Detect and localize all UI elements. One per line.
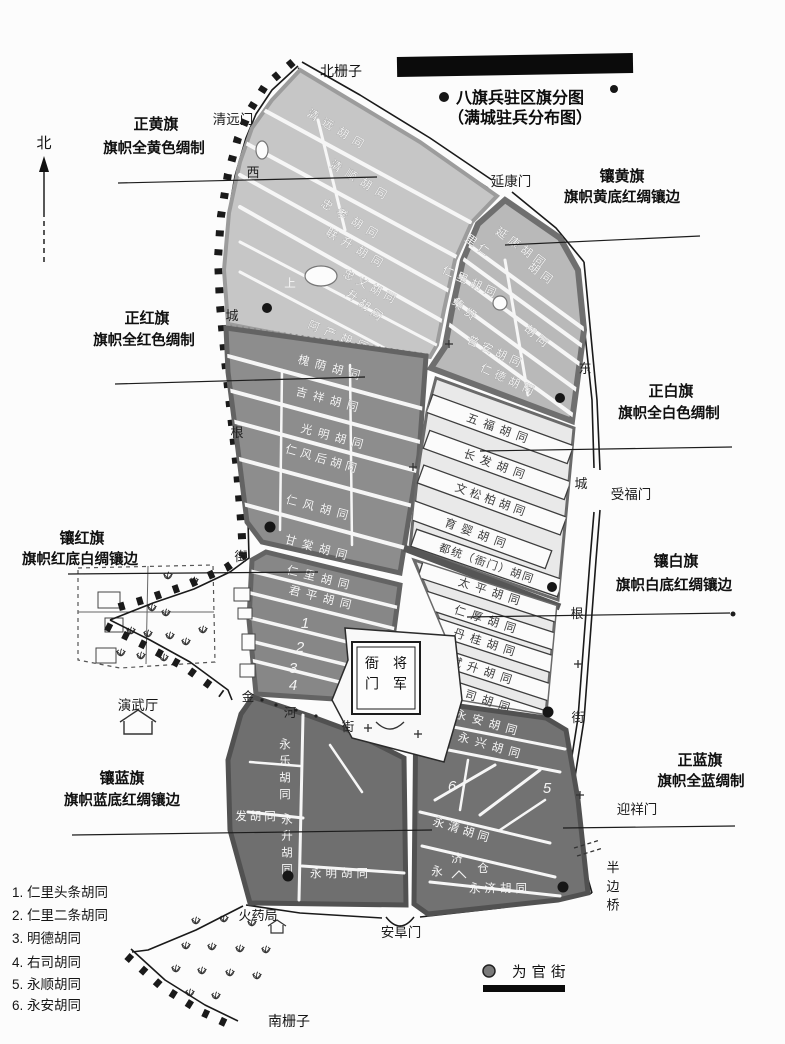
drill-hall-house-icon <box>120 710 156 734</box>
banner-label-xianghuang: 镶黄旗 <box>599 167 644 185</box>
hutong-label-shang: 上 <box>284 277 296 290</box>
svg-text:旗帜全蓝绸制: 旗帜全蓝绸制 <box>658 772 745 790</box>
pond <box>305 266 337 286</box>
svg-text:旗帜全红色绸制: 旗帜全红色绸制 <box>93 331 195 349</box>
note-item-4: 4. 右司胡同 <box>12 955 81 970</box>
north-label: 北 <box>36 135 51 152</box>
banner-label-zhenghong: 正红旗 <box>124 309 169 327</box>
notes-list: 1. 仁里头条胡同 2. 仁里二条胡同 3. 明德胡同 4. 右司胡同 5. 永… <box>12 884 108 1013</box>
west-street-char-jie: 街 <box>234 549 247 564</box>
powder-bureau-label: 火药局 <box>238 908 277 923</box>
hutong-label-fa: 发胡同 <box>235 809 279 823</box>
banner-label-zhengbai: 正白旗 <box>648 382 693 400</box>
stray-dot <box>610 85 618 93</box>
drill-hall-label: 演武厅 <box>118 698 159 713</box>
tree-icons-south <box>172 915 270 999</box>
hutong-label-yongji: 永济胡同 <box>469 881 531 895</box>
title-bullet-dot <box>439 92 449 102</box>
note-item-6: 6. 永安胡同 <box>12 998 81 1013</box>
west-street-char-xi: 西 <box>246 165 259 180</box>
north-arrow: 北 <box>36 135 51 265</box>
street-char: 街 <box>342 720 355 734</box>
note-item-1: 1. 仁里头条胡同 <box>12 884 108 900</box>
gate-label-yankangmen: 延康门 <box>491 173 532 189</box>
river-char: 河 <box>284 706 297 720</box>
gate-label-shoufumen: 受福门 <box>611 487 652 502</box>
granary-label-yong: 永 <box>431 864 443 878</box>
banner-label-zhenglan: 正蓝旗 <box>677 751 722 769</box>
map-number-1: 1 <box>301 615 309 632</box>
map-number-2: 2 <box>295 639 305 656</box>
map-number-3: 3 <box>289 660 298 677</box>
gate-label-yingxiangmen: 迎祥门 <box>617 802 658 817</box>
legend-label: 为官街 <box>512 964 571 981</box>
banner-label-xiangbai: 镶白旗 <box>653 552 698 570</box>
granary-label-ji: 济 <box>451 851 463 865</box>
east-street-char-cheng: 城 <box>574 476 587 491</box>
map-number-4: 4 <box>289 677 297 694</box>
north-fence-label: 北栅子 <box>320 63 362 79</box>
pond <box>256 141 268 159</box>
west-street-char-gen: 根 <box>230 425 243 440</box>
west-street-char-cheng: 城 <box>225 308 238 323</box>
legend-dot <box>483 965 495 977</box>
svg-text:旗帜蓝底红绸镶边: 旗帜蓝底红绸镶边 <box>64 791 180 809</box>
svg-text:旗帜红底白绸镶边: 旗帜红底白绸镶边 <box>22 550 138 568</box>
banner-label-xianglan: 镶蓝旗 <box>99 769 144 787</box>
east-street-char-jie: 街 <box>571 710 584 725</box>
annex-outer-wall <box>131 949 238 1021</box>
map-canvas: 清远胡同 清顺胡同 忠孝胡同 联升胡同 忠义胡同 上 升胡同 阿产胡同 延康胡同… <box>0 0 785 1044</box>
yamen-box <box>352 642 420 714</box>
svg-text:旗帜白底红绸镶边: 旗帜白底红绸镶边 <box>616 576 732 594</box>
hutong-label-yongming: 永明胡同 <box>310 866 372 880</box>
map-number-5: 5 <box>543 780 552 797</box>
note-item-3: 3. 明德胡同 <box>12 931 81 946</box>
note-item-5: 5. 永顺胡同 <box>12 977 81 992</box>
title-bar <box>397 53 633 77</box>
east-street-char-dong: 东 <box>578 361 591 376</box>
svg-text:旗帜全白色绸制: 旗帜全白色绸制 <box>618 404 720 422</box>
title-block: 八旗兵驻区旗分图 （满城驻兵分布图） <box>397 53 633 127</box>
svg-text:旗帜全黄色绸制: 旗帜全黄色绸制 <box>103 139 205 157</box>
annex-top-wall <box>132 906 243 952</box>
gate-label-anfumen: 安阜门 <box>381 924 422 940</box>
gate-label-qingyuanmen: 清远门 <box>213 112 254 127</box>
granary-label-cang: 仓 <box>477 861 489 875</box>
east-street-char-gen: 根 <box>570 606 583 621</box>
legend-bar <box>483 985 565 992</box>
annex-outer-wall-teeth <box>127 956 234 1027</box>
map-number-6: 6 <box>448 778 457 795</box>
banner-label-zhenghuang: 正黄旗 <box>133 115 178 133</box>
note-item-2: 2. 仁里二条胡同 <box>12 907 108 923</box>
region-zhenghong: 槐荫胡同 吉祥胡同 光明胡同 仁风后胡同 仁风胡同 甘棠胡同 <box>226 328 435 573</box>
south-fence-label: 南栅子 <box>268 1013 310 1029</box>
banner-label-xianghong: 镶红旗 <box>59 529 104 547</box>
legend: 为官街 <box>483 964 571 992</box>
svg-text:旗帜黄底红绸镶边: 旗帜黄底红绸镶边 <box>564 188 680 206</box>
gold-char: 金 <box>242 689 255 704</box>
map-title-line1: 八旗兵驻区旗分图 <box>455 88 584 107</box>
garrison-map-page: 清远胡同 清顺胡同 忠孝胡同 联升胡同 忠义胡同 上 升胡同 阿产胡同 延康胡同… <box>0 0 785 1044</box>
half-bridge-label: 半边桥 <box>606 860 619 913</box>
map-title-line2: （满城驻兵分布图） <box>448 108 592 127</box>
